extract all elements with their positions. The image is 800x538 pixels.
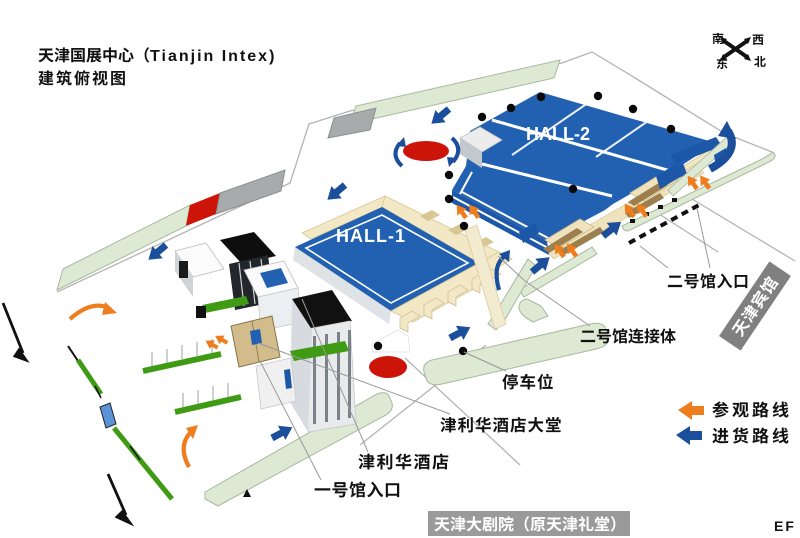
svg-text:天津国展中心（Tianjin Intex): 天津国展中心（Tianjin Intex) xyxy=(38,42,276,66)
svg-text:北: 北 xyxy=(754,53,766,70)
svg-text:停车位: 停车位 xyxy=(502,369,555,393)
svg-text:二号馆入口: 二号馆入口 xyxy=(667,268,750,292)
svg-text:东: 东 xyxy=(716,55,728,72)
svg-text:一号馆入口: 一号馆入口 xyxy=(314,476,402,501)
svg-text:参观路线: 参观路线 xyxy=(712,396,792,421)
svg-text:HALL-2: HALL-2 xyxy=(526,124,590,144)
svg-text:天津大剧院（原天津礼堂）: 天津大剧院（原天津礼堂） xyxy=(434,511,626,535)
svg-text:南: 南 xyxy=(712,30,724,47)
svg-text:西: 西 xyxy=(752,31,764,48)
svg-text:津利华酒店大堂: 津利华酒店大堂 xyxy=(440,412,563,436)
svg-text:进货路线: 进货路线 xyxy=(712,422,792,447)
svg-text:EF: EF xyxy=(774,518,796,534)
svg-text:津利华酒店: 津利华酒店 xyxy=(358,448,451,473)
svg-text:HALL-1: HALL-1 xyxy=(336,226,406,246)
svg-text:建筑俯视图: 建筑俯视图 xyxy=(38,65,128,89)
svg-text:二号馆连接体: 二号馆连接体 xyxy=(580,323,676,347)
